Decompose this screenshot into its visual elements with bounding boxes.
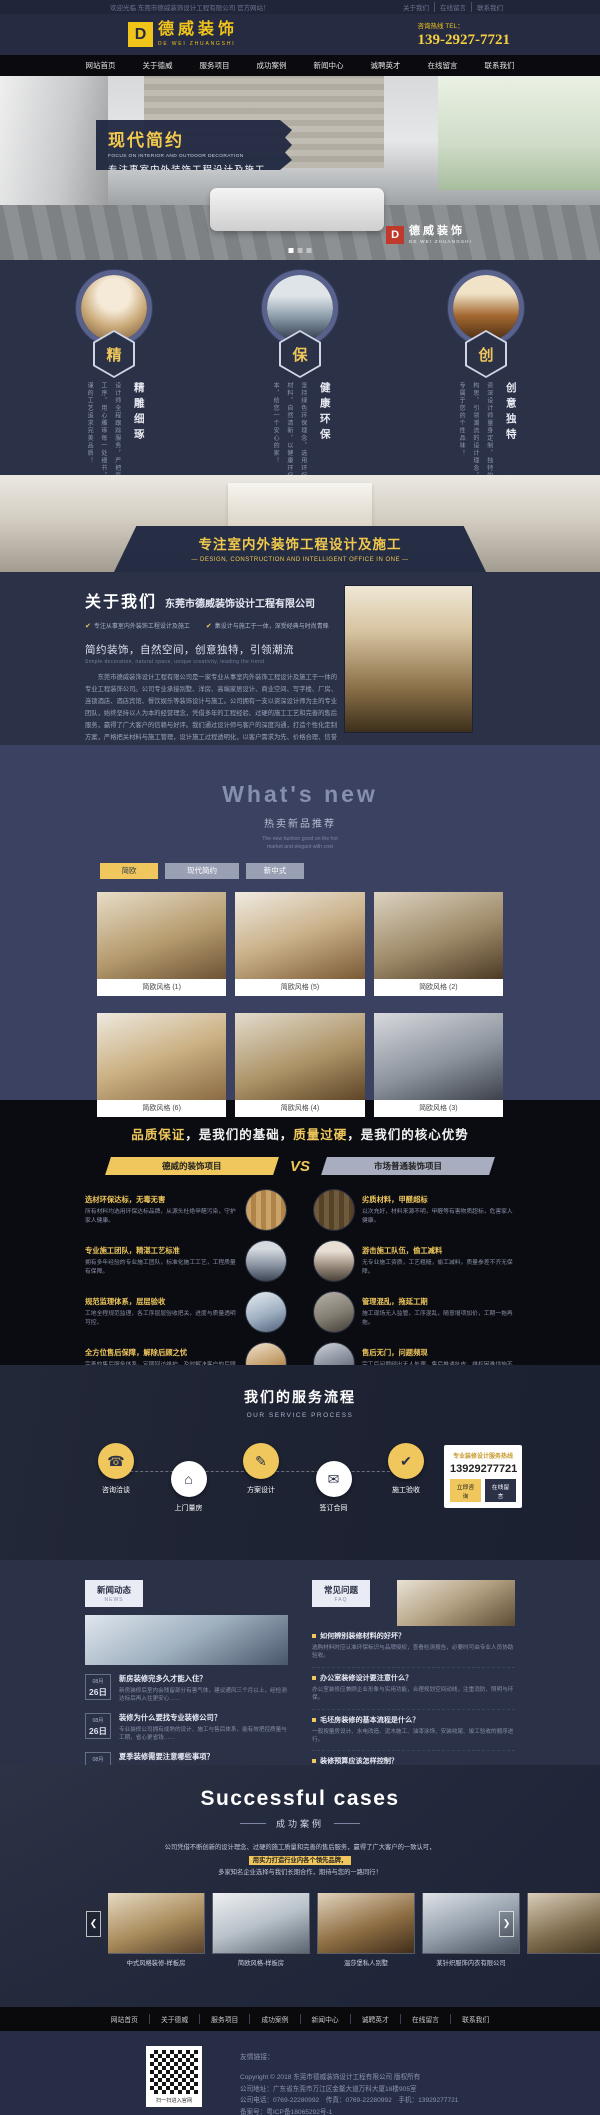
company-address: 公司地址：广东省东莞市万江区金鳌大道万科大厦18楼905室 bbox=[240, 2084, 458, 2096]
compare-title: 品质保证，是我们的基础，质量过硬，是我们的核心优势 bbox=[0, 1124, 600, 1143]
vs-label: VS bbox=[290, 1158, 310, 1175]
cases-carousel: ❮ 中式风格装修-样板房 简欧风格-样板房 温莎堡私人别墅 某针织服饰内衣有限公… bbox=[0, 1893, 600, 1967]
gallery-photo bbox=[235, 892, 364, 979]
hotline-label: 咨询热线 TEL： bbox=[418, 20, 511, 30]
gallery-card[interactable]: 简欧风格 (6) bbox=[97, 1013, 226, 1117]
gallery-photo bbox=[97, 1013, 226, 1100]
compare-row: 专业施工团队，精湛工艺标准拥有多年经验的专业施工团队，标准化施工工艺，工程质量有… bbox=[85, 1241, 286, 1281]
footer-nav: 网站首页 关于德威 服务项目 成功案例 新闻中心 诚聘英才 在线留言 联系我们 bbox=[0, 2007, 600, 2031]
feature-exquisite: 精 精雕细琢 设计师全程跟踪服务，严把每一道工序，用心雕琢每一处细节，以严谨的工… bbox=[39, 270, 189, 500]
gallery-photo bbox=[235, 1013, 364, 1100]
case-photo bbox=[213, 1893, 309, 1953]
news-faq-section: 新闻动态 NEWS 08月26日 新房装修完多久才能入住？新房装修后室内会残留部… bbox=[0, 1560, 600, 1765]
footer: 扫一扫进入官网 友情链接： Copyright © 2018 东莞市德威装饰设计… bbox=[0, 2031, 600, 2115]
whats-new-title: What's new bbox=[0, 781, 600, 808]
qr-image bbox=[150, 2050, 198, 2094]
footer-nav-message[interactable]: 在线留言 bbox=[400, 2014, 450, 2024]
topbar-links: 关于我们 在线留言 联系我们 bbox=[398, 2, 508, 12]
faq-tag: 常见问题 FAQ bbox=[312, 1580, 370, 1607]
whats-new-section: What's new 热卖新品推荐 The new fashion good o… bbox=[0, 745, 600, 1100]
friend-links-label: 友情链接： bbox=[240, 2051, 458, 2061]
cases-title: Successful cases bbox=[0, 1787, 600, 1811]
news-item[interactable]: 08月26日 装修为什么要找专业装修公司？专业装修公司拥有成熟的设计、施工与售后… bbox=[85, 1713, 288, 1743]
compare-photo bbox=[246, 1292, 286, 1332]
step-consult: ☎ 咨询洽谈 bbox=[88, 1443, 144, 1513]
tab-modern[interactable]: 现代简约 bbox=[165, 863, 239, 879]
service-hotline-card: 专业装修设计服务热线 13929277721 立即咨询 在线留言 bbox=[444, 1445, 522, 1508]
whats-new-subtitle: 热卖新品推荐 bbox=[0, 815, 600, 830]
gallery-card[interactable]: 简欧风格 (3) bbox=[374, 1013, 503, 1117]
feature-creative: 创 创意独特 资深设计师量身定制，独特的创意构思，引领潮流的设计理念，彰显专属于… bbox=[411, 270, 561, 500]
highlight-text: 用实力打造行业内各个领先品牌， bbox=[249, 1856, 351, 1865]
case-card[interactable]: 温莎堡私人别墅 bbox=[318, 1893, 414, 1967]
compare-row: 选材环保达标，无毒无害所有材料均选用环保达标品牌，从源头杜绝甲醛污染，守护家人健… bbox=[85, 1190, 286, 1230]
hero-banner: 现代简约 FOCUS ON INTERIOR AND OUTDOOR DECOR… bbox=[0, 76, 600, 260]
check-icon: ✔ bbox=[206, 622, 212, 630]
qr-code: 扫一扫进入官网 bbox=[146, 2046, 202, 2107]
case-card[interactable]: 中式风格装修-样板房 bbox=[108, 1893, 204, 1967]
step-contract: ✉ 签订合同 bbox=[306, 1461, 362, 1513]
about-company: 东莞市德威装饰设计工程有限公司 bbox=[165, 595, 315, 610]
about-slogan: 简约装饰，自然空间，创意独特，引领潮流 bbox=[85, 642, 337, 657]
hero-title: 现代简约 bbox=[108, 126, 278, 151]
case-photo bbox=[108, 1893, 204, 1953]
process-steps: ☎ 咨询洽谈 ⌂ 上门量房 ✎ 方案设计 ✉ 签订合同 ✔ 施工验收 bbox=[88, 1443, 434, 1513]
about-slogan-en: Simple decoration, natural space, unique… bbox=[85, 659, 337, 665]
about-section: 关于我们 东莞市德威装饰设计工程有限公司 ✔专注从事室内外装饰工程设计及施工 ✔… bbox=[0, 572, 600, 745]
process-subtitle: OUR SERVICE PROCESS bbox=[0, 1412, 600, 1419]
gallery-photo bbox=[97, 892, 226, 979]
logo-icon: D bbox=[128, 22, 153, 47]
case-card[interactable] bbox=[528, 1893, 600, 1967]
footer-nav-home[interactable]: 网站首页 bbox=[100, 2014, 149, 2024]
strip-banner: 专注室内外装饰工程设计及施工 — DESIGN, CONSTRUCTION AN… bbox=[0, 475, 600, 572]
watermark-en: DE WEI ZHUANGSHI bbox=[409, 239, 472, 244]
leave-message-button[interactable]: 在线留言 bbox=[485, 1479, 516, 1502]
ribbon-market: 市场普通装饰项目 bbox=[321, 1157, 495, 1175]
hero-photo-stairs bbox=[0, 76, 108, 208]
faq-column: 常见问题 FAQ 如何辨别装修材料的好坏？选购材料时应认准环保标识与品牌授权，查… bbox=[312, 1580, 515, 1765]
hotline-phone: 139-2927-7721 bbox=[418, 32, 511, 49]
nav-news[interactable]: 新闻中心 bbox=[314, 60, 344, 71]
logo-cn: 德威装饰 bbox=[158, 22, 238, 38]
gallery-card[interactable]: 简欧风格 (4) bbox=[235, 1013, 364, 1117]
footer-nav-contact[interactable]: 联系我们 bbox=[450, 2014, 500, 2024]
slider-dot[interactable] bbox=[289, 248, 294, 253]
tab-jianou[interactable]: 简欧 bbox=[100, 863, 158, 879]
topbar-link-message[interactable]: 在线留言 bbox=[434, 2, 471, 12]
nav-services[interactable]: 服务项目 bbox=[200, 60, 230, 71]
compare-right-column: 劣质材料，甲醛超标以次充好，材料来源不明，甲醛等有害物质超标，危害家人健康。 游… bbox=[314, 1190, 515, 1394]
gallery-card[interactable]: 简欧风格 (5) bbox=[235, 892, 364, 996]
about-photo bbox=[345, 586, 472, 732]
welcome-text: 欢迎光临 东莞市德威装饰设计工程有限公司 官方网站！ bbox=[110, 2, 270, 12]
hero-subtitle-en: FOCUS ON INTERIOR AND OUTDOOR DECORATION bbox=[108, 154, 278, 159]
step-design: ✎ 方案设计 bbox=[233, 1443, 289, 1513]
news-column: 新闻动态 NEWS 08月26日 新房装修完多久才能入住？新房装修后室内会残留部… bbox=[85, 1580, 288, 1765]
about-point: ✔专注从事室内外装饰工程设计及施工 bbox=[85, 621, 190, 630]
footer-nav-about[interactable]: 关于德威 bbox=[149, 2014, 199, 2024]
case-photo bbox=[528, 1893, 600, 1953]
hero-photo-sofa bbox=[210, 188, 384, 230]
slider-dots bbox=[289, 248, 312, 253]
footer-nav-news[interactable]: 新闻中心 bbox=[300, 2014, 350, 2024]
faq-photo bbox=[397, 1580, 515, 1626]
strip-title: 专注室内外装饰工程设计及施工 bbox=[114, 533, 486, 553]
strip-photo-shelf bbox=[228, 483, 372, 527]
qr-label: 扫一扫进入官网 bbox=[150, 2097, 198, 2104]
compare-photo bbox=[314, 1292, 354, 1332]
news-date: 08月26日 bbox=[85, 1674, 111, 1700]
compare-row: 规范监理体系，层层验收工地全程规范监理，各工序层层验收把关，进度与质量透明可控。 bbox=[85, 1292, 286, 1332]
hotline: 咨询热线 TEL： 139-2927-7721 bbox=[418, 20, 511, 49]
company-phones: 公司电话：0769-22280992 传真：0769-22280992 手机：1… bbox=[240, 2095, 458, 2107]
main-nav: 网站首页 关于德威 服务项目 成功案例 新闻中心 诚聘英才 在线留言 联系我们 bbox=[0, 55, 600, 76]
gallery-photo bbox=[374, 1013, 503, 1100]
compare-photo bbox=[246, 1241, 286, 1281]
slider-dot[interactable] bbox=[307, 248, 312, 253]
page: 欢迎光临 东莞市德威装饰设计工程有限公司 官方网站！ 关于我们 在线留言 联系我… bbox=[0, 0, 600, 2115]
zigzag-decoration bbox=[0, 745, 600, 771]
copyright: Copyright © 2018 东莞市德威装饰设计工程有限公司 版权所有 bbox=[240, 2072, 458, 2084]
logo: D 德威装饰 DE WEI ZHUANGSHI bbox=[128, 22, 238, 47]
gallery-photo bbox=[374, 892, 503, 979]
compare-photo bbox=[314, 1241, 354, 1281]
whats-new-subtitle-en: The new fashion good on the hot market a… bbox=[0, 835, 600, 852]
nav-home[interactable]: 网站首页 bbox=[86, 60, 116, 71]
house-icon: ⌂ bbox=[184, 1471, 192, 1487]
check-icon: ✔ bbox=[400, 1453, 412, 1470]
compare-left-column: 选材环保达标，无毒无害所有材料均选用环保达标品牌，从源头杜绝甲醛污染，守护家人健… bbox=[85, 1190, 286, 1394]
slider-dot[interactable] bbox=[298, 248, 303, 253]
nav-about[interactable]: 关于德威 bbox=[143, 60, 173, 71]
watermark-logo-icon: D bbox=[386, 226, 404, 244]
footer-nav-cases[interactable]: 成功案例 bbox=[249, 2014, 299, 2024]
check-icon: ✔ bbox=[85, 622, 91, 630]
style-tabs: 简欧 现代简约 新中式 bbox=[0, 863, 600, 879]
carousel-prev-icon[interactable]: ❮ bbox=[86, 1911, 101, 1937]
news-tag: 新闻动态 NEWS bbox=[85, 1580, 143, 1607]
process-title: 我们的服务流程 bbox=[0, 1387, 600, 1407]
footer-nav-services[interactable]: 服务项目 bbox=[199, 2014, 249, 2024]
cases-section: Successful cases 成功案例 公司凭借不断创新的设计理念、过硬的施… bbox=[0, 1765, 600, 2007]
topbar: 欢迎光临 东莞市德威装饰设计工程有限公司 官方网站！ 关于我们 在线留言 联系我… bbox=[0, 0, 600, 14]
nav-message[interactable]: 在线留言 bbox=[428, 60, 458, 71]
step-measure: ⌂ 上门量房 bbox=[161, 1461, 217, 1513]
faq-item[interactable]: 毛坯房装修的基本流程是什么？一般按量房设计、水电改造、泥木施工、油漆涂饰、安装收… bbox=[312, 1710, 515, 1752]
gallery-grid: 简欧风格 (1) 简欧风格 (5) 简欧风格 (2) 简欧风格 (6) 简欧风格… bbox=[0, 892, 600, 1117]
hero-caption: 现代简约 FOCUS ON INTERIOR AND OUTDOOR DECOR… bbox=[96, 120, 292, 170]
about-title: 关于我们 bbox=[85, 588, 157, 612]
news-date: 08月26日 bbox=[85, 1713, 111, 1739]
hero-photo-window bbox=[438, 76, 600, 190]
news-item[interactable]: 08月26日 新房装修完多久才能入住？新房装修后室内会残留部分有害气体，建议通风… bbox=[85, 1674, 288, 1704]
news-photo bbox=[85, 1615, 288, 1665]
case-photo bbox=[318, 1893, 414, 1953]
process-section: 我们的服务流程 OUR SERVICE PROCESS ☎ 咨询洽谈 ⌂ 上门量… bbox=[0, 1365, 600, 1560]
hotline-card-title: 专业装修设计服务热线 bbox=[450, 1451, 516, 1460]
strip-caption: 专注室内外装饰工程设计及施工 — DESIGN, CONSTRUCTION AN… bbox=[114, 526, 486, 572]
icp-number: 备案号：粤ICP备18065292号-1 bbox=[240, 2107, 458, 2115]
compare-row: 劣质材料，甲醛超标以次充好，材料来源不明，甲醛等有害物质超标，危害家人健康。 bbox=[314, 1190, 515, 1230]
contract-icon: ✉ bbox=[328, 1471, 340, 1488]
hero-watermark: D 德威装饰 DE WEI ZHUANGSHI bbox=[386, 226, 472, 244]
phone-icon: ☎ bbox=[107, 1453, 124, 1470]
nav-jobs[interactable]: 诚聘英才 bbox=[371, 60, 401, 71]
compare-photo bbox=[246, 1190, 286, 1230]
case-card[interactable]: 简欧风格-样板房 bbox=[213, 1893, 309, 1967]
footer-nav-jobs[interactable]: 诚聘英才 bbox=[350, 2014, 400, 2024]
compare-section: 品质保证，是我们的基础，质量过硬，是我们的核心优势 德威的装饰项目 VS 市场普… bbox=[0, 1100, 600, 1365]
faq-item[interactable]: 如何辨别装修材料的好坏？选购材料时应认准环保标识与品牌授权，查看检测报告，必要时… bbox=[312, 1626, 515, 1668]
cases-subtitle: 成功案例 bbox=[0, 1817, 600, 1830]
hero-subtitle-cn: 专注事室内外装饰工程设计及施工 bbox=[108, 162, 278, 176]
consult-now-button[interactable]: 立即咨询 bbox=[450, 1479, 481, 1502]
feature-eco: 保 健康环保 坚持绿色环保理念，选用环保达标材料，自然清新，以健康环保为根本，给… bbox=[225, 270, 375, 500]
nav-contact[interactable]: 联系我们 bbox=[485, 60, 515, 71]
header: D 德威装饰 DE WEI ZHUANGSHI 咨询热线 TEL： 139-29… bbox=[0, 14, 600, 55]
step-acceptance: ✔ 施工验收 bbox=[378, 1443, 434, 1513]
topbar-link-about[interactable]: 关于我们 bbox=[398, 2, 434, 12]
logo-en: DE WEI ZHUANGSHI bbox=[158, 41, 238, 47]
features-section: 精 精雕细琢 设计师全程跟踪服务，严把每一道工序，用心雕琢每一处细节，以严谨的工… bbox=[0, 260, 600, 475]
cases-paragraph: 公司凭借不断创新的设计理念、过硬的施工质量和完善的售后服务，赢得了广大客户的一致… bbox=[0, 1842, 600, 1880]
pencil-icon: ✎ bbox=[255, 1453, 267, 1470]
compare-row: 管理混乱，拖延工期施工现场无人监管，工序混乱，随意增项加价，工期一拖再拖。 bbox=[314, 1292, 515, 1332]
hotline-card-phone: 13929277721 bbox=[450, 1463, 516, 1475]
compare-row: 游击施工队伍，偷工减料无专业施工资质，工艺粗糙，偷工减料，质量参差不齐无保障。 bbox=[314, 1241, 515, 1281]
watermark-cn: 德威装饰 bbox=[409, 226, 472, 237]
gallery-card[interactable]: 简欧风格 (2) bbox=[374, 892, 503, 996]
faq-item[interactable]: 办公室装修设计要注意什么？办公室装修应兼顾企业形象与实用功能，合理规划空间动线，… bbox=[312, 1668, 515, 1710]
compare-photo bbox=[314, 1190, 354, 1230]
ribbon-dewei: 德威的装饰项目 bbox=[105, 1157, 279, 1175]
gallery-card[interactable]: 简欧风格 (1) bbox=[97, 892, 226, 996]
topbar-link-contact[interactable]: 联系我们 bbox=[471, 2, 508, 12]
about-paragraph: 东莞市德威装饰设计工程有限公司是一家专业从事室内外装饰工程设计及施工于一体的专业… bbox=[85, 672, 337, 756]
nav-cases[interactable]: 成功案例 bbox=[257, 60, 287, 71]
tab-new-chinese[interactable]: 新中式 bbox=[246, 863, 304, 879]
strip-subtitle: — DESIGN, CONSTRUCTION AND INTELLIGENT O… bbox=[114, 557, 486, 563]
about-point: ✔集设计与施工于一体，深受经典与时尚青睐 bbox=[206, 621, 329, 630]
carousel-next-icon[interactable]: ❯ bbox=[499, 1911, 514, 1937]
